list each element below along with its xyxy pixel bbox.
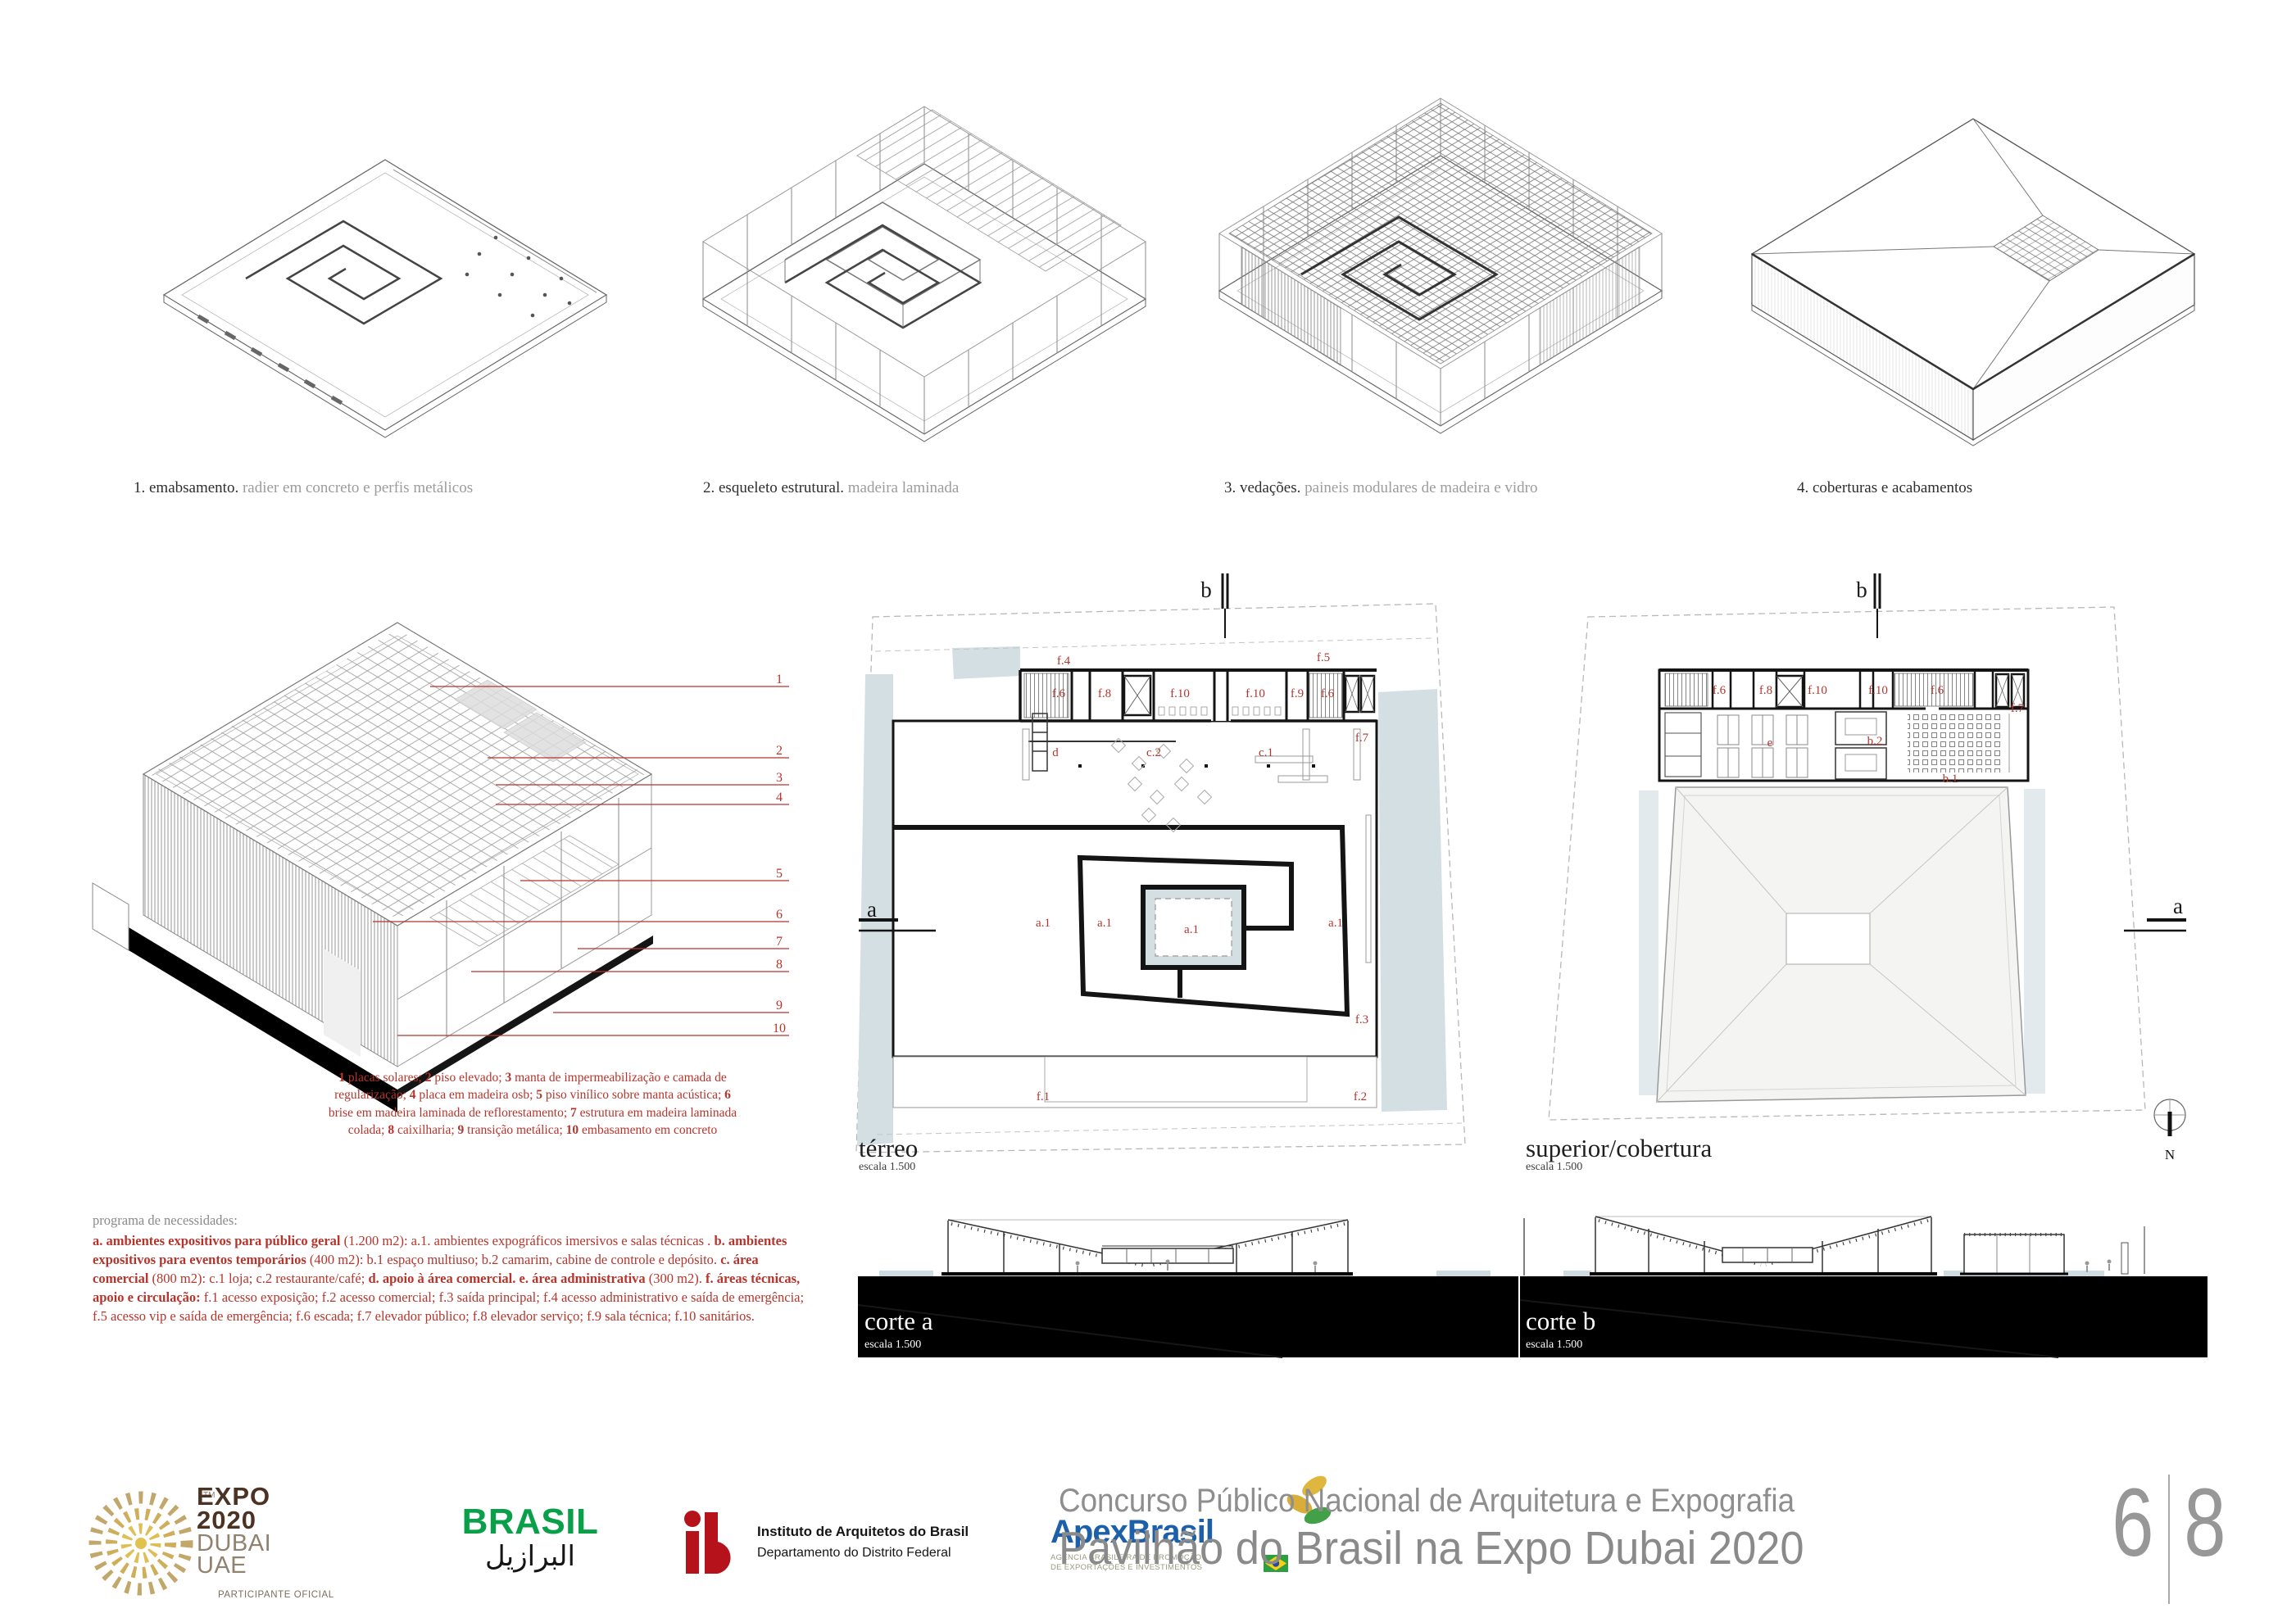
- section-columns: [1595, 1217, 1931, 1274]
- drawing-label: f.7: [2011, 702, 2025, 715]
- iab-line2: Departamento do Distrito Federal: [757, 1546, 969, 1561]
- text-run: piso vinílico sobre manta acústica;: [542, 1088, 724, 1102]
- drawing-label: b.1: [1943, 772, 1958, 786]
- text-run: (1.200 m2): a.1. ambientes expográficos …: [344, 1233, 715, 1248]
- text-run: (300 m2).: [649, 1271, 706, 1286]
- caption-label: 3. vedações.: [1224, 479, 1300, 496]
- sheet-number: 6 8: [2106, 1475, 2231, 1604]
- drawing-label: f.9: [1291, 687, 1304, 700]
- drawing-label: f.8: [1759, 684, 1772, 697]
- drawing-label: d: [1052, 746, 1059, 759]
- drawing-label: 10: [773, 1022, 786, 1035]
- corte-b-title: corte b: [1526, 1307, 1595, 1335]
- drawing-label: f.7: [1355, 732, 1369, 745]
- iab-logo-text: Instituto de Arquitetos do Brasil Depart…: [757, 1524, 969, 1561]
- iab-logo-icon: [682, 1509, 733, 1578]
- drawing-label: a.1: [1184, 923, 1199, 936]
- sheet-number-total: 8: [2184, 1475, 2226, 1571]
- axon-step-2-drawing: [662, 45, 1187, 471]
- drawing-label: a: [867, 897, 877, 922]
- drawing-label: f.2: [1354, 1090, 1367, 1103]
- text-run: d. apoio à área comercial.: [368, 1271, 519, 1286]
- caption-step-3: 3. vedações. paineis modulares de madeir…: [1224, 479, 1538, 497]
- expo-line3: DUBAI: [197, 1533, 271, 1556]
- exploded-axon-drawing: 12345678910: [78, 565, 815, 1130]
- text-run: caixilharia;: [394, 1123, 457, 1137]
- exploded-legend: 1 placas solares; 2 piso elevado; 3 mant…: [328, 1069, 737, 1139]
- text-run: transição metálica;: [464, 1123, 565, 1137]
- drawing-label: f.3: [1355, 1013, 1368, 1026]
- competition-title: Concurso Público Nacional de Arquitetura…: [1059, 1483, 1804, 1520]
- text-run: 1: [338, 1071, 345, 1085]
- drawing-label: a.1: [1328, 917, 1343, 930]
- drawing-label: 6: [776, 908, 783, 922]
- program-block: programa de necessidades: a. ambientes e…: [93, 1211, 807, 1326]
- program-heading: programa de necessidades:: [93, 1211, 807, 1230]
- section-columns: [948, 1221, 1348, 1274]
- drawing-label: a: [2173, 894, 2183, 918]
- auditorium-seats: [1908, 714, 2003, 772]
- text-run: embasamento em concreto: [579, 1123, 717, 1137]
- text-run: (400 m2): b.1 espaço multiuso; b.2 camar…: [310, 1252, 720, 1267]
- drawing-label: b: [1856, 578, 1867, 602]
- project-title: Pavilhão do Brasil na Expo Dubai 2020: [1059, 1521, 1804, 1575]
- drawing-label: 1: [776, 673, 783, 686]
- drawing-label: f.6: [1052, 687, 1066, 700]
- drawing-label: 3: [776, 771, 783, 785]
- sheet-title-block: Concurso Público Nacional de Arquitetura…: [1059, 1483, 1804, 1575]
- caption-step-4: 4. coberturas e acabamentos: [1797, 479, 1972, 497]
- sheet-number-current: 6: [2112, 1475, 2153, 1571]
- drawing-label: 4: [776, 791, 783, 804]
- text-run: piso elevado;: [431, 1071, 505, 1085]
- expo-line1: EXPO: [197, 1484, 271, 1508]
- program-body: a. ambientes expositivos para público ge…: [93, 1231, 807, 1325]
- corte-b-scale: escala 1.500: [1526, 1339, 1582, 1351]
- expo-line2: 2020: [197, 1508, 271, 1532]
- corte-a-title: corte a: [864, 1307, 933, 1335]
- leader-numbers: 12345678910: [773, 673, 786, 1035]
- caption-label: 1. emabsamento.: [134, 479, 238, 496]
- drawing-label: f.10: [1246, 687, 1265, 700]
- caption-desc: paineis modulares de madeira e vidro: [1300, 479, 1537, 496]
- corte-a-scale: escala 1.500: [864, 1339, 921, 1351]
- text-run: a. ambientes expositivos para público ge…: [93, 1233, 344, 1248]
- drawing-label: 7: [776, 935, 783, 949]
- brasil-latin: BRASIL: [452, 1504, 608, 1540]
- text-run: 10: [566, 1123, 579, 1137]
- drawing-label: f.10: [1170, 687, 1190, 700]
- drawing-label: 2: [776, 744, 783, 758]
- drawing-label: b: [1200, 578, 1212, 602]
- brasil-logo: BRASIL البرازيل: [452, 1504, 608, 1574]
- participante-oficial-label: PARTICIPANTE OFICIAL: [218, 1590, 334, 1600]
- sheet-number-divider: [2168, 1475, 2170, 1604]
- text-run: 4: [410, 1088, 416, 1102]
- drawing-label: f.1: [1037, 1090, 1050, 1103]
- drawing-label: 9: [776, 999, 783, 1013]
- terreo-scale: escala 1.500: [859, 1161, 918, 1174]
- stair-hatch: [1665, 673, 1708, 706]
- drawing-label: f.6: [1713, 684, 1727, 697]
- terreo-title-block: térreo escala 1.500: [859, 1135, 918, 1174]
- drawing-label: f.10: [1808, 684, 1827, 697]
- axon-step-1-drawing: [123, 41, 647, 467]
- drawing-label: f.4: [1057, 655, 1071, 668]
- text-run: 7: [570, 1106, 577, 1120]
- caption-step-2: 2. esqueleto estrutural. madeira laminad…: [703, 479, 959, 497]
- text-run: e. área administrativa: [520, 1271, 649, 1286]
- text-run: 8: [388, 1123, 394, 1137]
- drawing-label: f.5: [1317, 651, 1330, 664]
- caption-label: 2. esqueleto estrutural.: [703, 479, 844, 496]
- corte-b-drawing: corte b escala 1.500: [1518, 1184, 2210, 1364]
- drawing-label: a.1: [1097, 917, 1112, 930]
- drawing-label: 5: [776, 867, 783, 881]
- drawing-label: c.2: [1146, 746, 1161, 759]
- caption-desc: radier em concreto e perfis metálicos: [238, 479, 473, 496]
- caption-desc: madeira laminada: [844, 479, 959, 496]
- drawing-label: f.10: [1868, 684, 1888, 697]
- axon-step-4-drawing: [1711, 49, 2235, 475]
- terreo-title: térreo: [859, 1135, 918, 1161]
- text-run: brise em madeira laminada de reflorestam…: [329, 1106, 570, 1120]
- drawing-label: a.1: [1036, 917, 1050, 930]
- caption-step-1: 1. emabsamento. radier em concreto e per…: [134, 479, 473, 497]
- terreo-plan-drawing: f.4f.5f.6f.8f.10f.10f.9f.6f.7dc.2c.1a.1a…: [852, 569, 1483, 1155]
- caption-label: 4. coberturas e acabamentos: [1797, 479, 1972, 496]
- superior-title: superior/cobertura: [1526, 1135, 1712, 1161]
- text-run: 6: [724, 1088, 731, 1102]
- iab-line1: Instituto de Arquitetos do Brasil: [757, 1524, 969, 1540]
- text-run: 5: [536, 1088, 542, 1102]
- people-silhouettes: [2085, 1260, 2111, 1272]
- drawing-label: f.6: [1321, 687, 1335, 700]
- brasil-arabic: البرازيل: [452, 1540, 608, 1574]
- drawing-label: e: [1767, 736, 1773, 750]
- expo-line4: UAE: [197, 1555, 271, 1578]
- corte-a-drawing: corte a escala 1.500: [856, 1184, 1522, 1364]
- text-run: (800 m2): c.1 loja; c.2 restaurante/café…: [152, 1271, 369, 1286]
- drawing-label: c.1: [1259, 746, 1273, 759]
- north-compass-icon: [2154, 1099, 2185, 1136]
- drawing-label: 8: [776, 958, 783, 972]
- drawing-label: f.6: [1931, 684, 1944, 697]
- expo-2020-logo: EXPO 2020 DUBAI UAE: [197, 1484, 271, 1578]
- drawing-label: f.8: [1098, 687, 1111, 700]
- text-run: placas solares;: [345, 1071, 425, 1085]
- drawing-label: b.2: [1867, 735, 1883, 748]
- superior-title-block: superior/cobertura escala 1.500: [1526, 1135, 1712, 1174]
- annex-volume: [1960, 1235, 2068, 1274]
- axon-step-3-drawing: [1178, 37, 1703, 463]
- competition-board-page: { "captions": [ {"label": "1. emabsament…: [0, 0, 2296, 1622]
- drawing-label: N: [2165, 1147, 2175, 1162]
- superior-scale: escala 1.500: [1526, 1161, 1712, 1174]
- superior-plan-drawing: f.6f.8f.10f.10f.6f.7eb.2b.1baN: [1516, 569, 2208, 1196]
- text-run: placa em madeira osb;: [416, 1088, 537, 1102]
